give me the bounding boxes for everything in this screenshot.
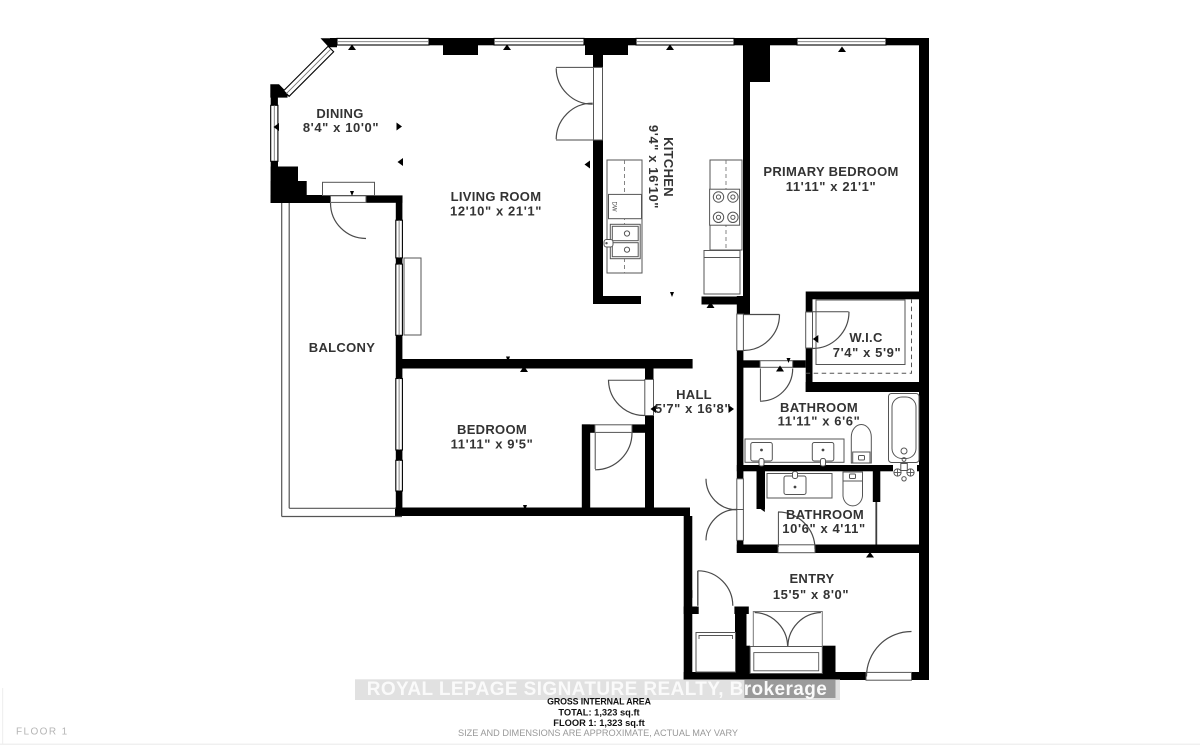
svg-text:TOTAL: 1,323 sq.ft: TOTAL: 1,323 sq.ft xyxy=(558,708,639,718)
svg-text:LIVING ROOM: LIVING ROOM xyxy=(451,189,542,204)
svg-text:9'4" x 16'10": 9'4" x 16'10" xyxy=(646,125,661,209)
svg-text:DW: DW xyxy=(611,202,617,212)
svg-text:11'11" x 6'6": 11'11" x 6'6" xyxy=(778,414,861,429)
svg-text:BEDROOM: BEDROOM xyxy=(457,422,527,437)
svg-text:12'10" x 21'1": 12'10" x 21'1" xyxy=(450,204,542,219)
svg-text:W.I.C: W.I.C xyxy=(849,330,883,345)
svg-text:DINING: DINING xyxy=(316,106,363,121)
svg-text:ENTRY: ENTRY xyxy=(789,571,834,586)
svg-text:8'4" x 10'0": 8'4" x 10'0" xyxy=(303,120,379,135)
svg-text:FLOOR 1: 1,323 sq.ft: FLOOR 1: 1,323 sq.ft xyxy=(553,718,644,728)
svg-text:FLOOR 1: FLOOR 1 xyxy=(16,727,69,738)
svg-text:BATHROOM: BATHROOM xyxy=(786,507,864,522)
svg-text:11'11" x 21'1": 11'11" x 21'1" xyxy=(786,179,877,194)
svg-text:PRIMARY BEDROOM: PRIMARY BEDROOM xyxy=(763,164,898,179)
svg-text:11'11" x 9'5": 11'11" x 9'5" xyxy=(451,437,534,452)
svg-text:KITCHEN: KITCHEN xyxy=(661,137,676,197)
svg-text:15'5" x 8'0": 15'5" x 8'0" xyxy=(773,587,849,602)
svg-text:5'7" x 16'8": 5'7" x 16'8" xyxy=(655,401,731,416)
svg-text:GROSS INTERNAL AREA: GROSS INTERNAL AREA xyxy=(547,697,651,707)
svg-text:7'4" x 5'9": 7'4" x 5'9" xyxy=(833,345,901,360)
svg-text:SIZE AND DIMENSIONS ARE APPROX: SIZE AND DIMENSIONS ARE APPROXIMATE, ACT… xyxy=(458,728,738,738)
svg-text:BALCONY: BALCONY xyxy=(309,340,375,355)
svg-text:HALL: HALL xyxy=(676,387,712,402)
svg-text:10'6" x 4'11": 10'6" x 4'11" xyxy=(782,521,865,536)
